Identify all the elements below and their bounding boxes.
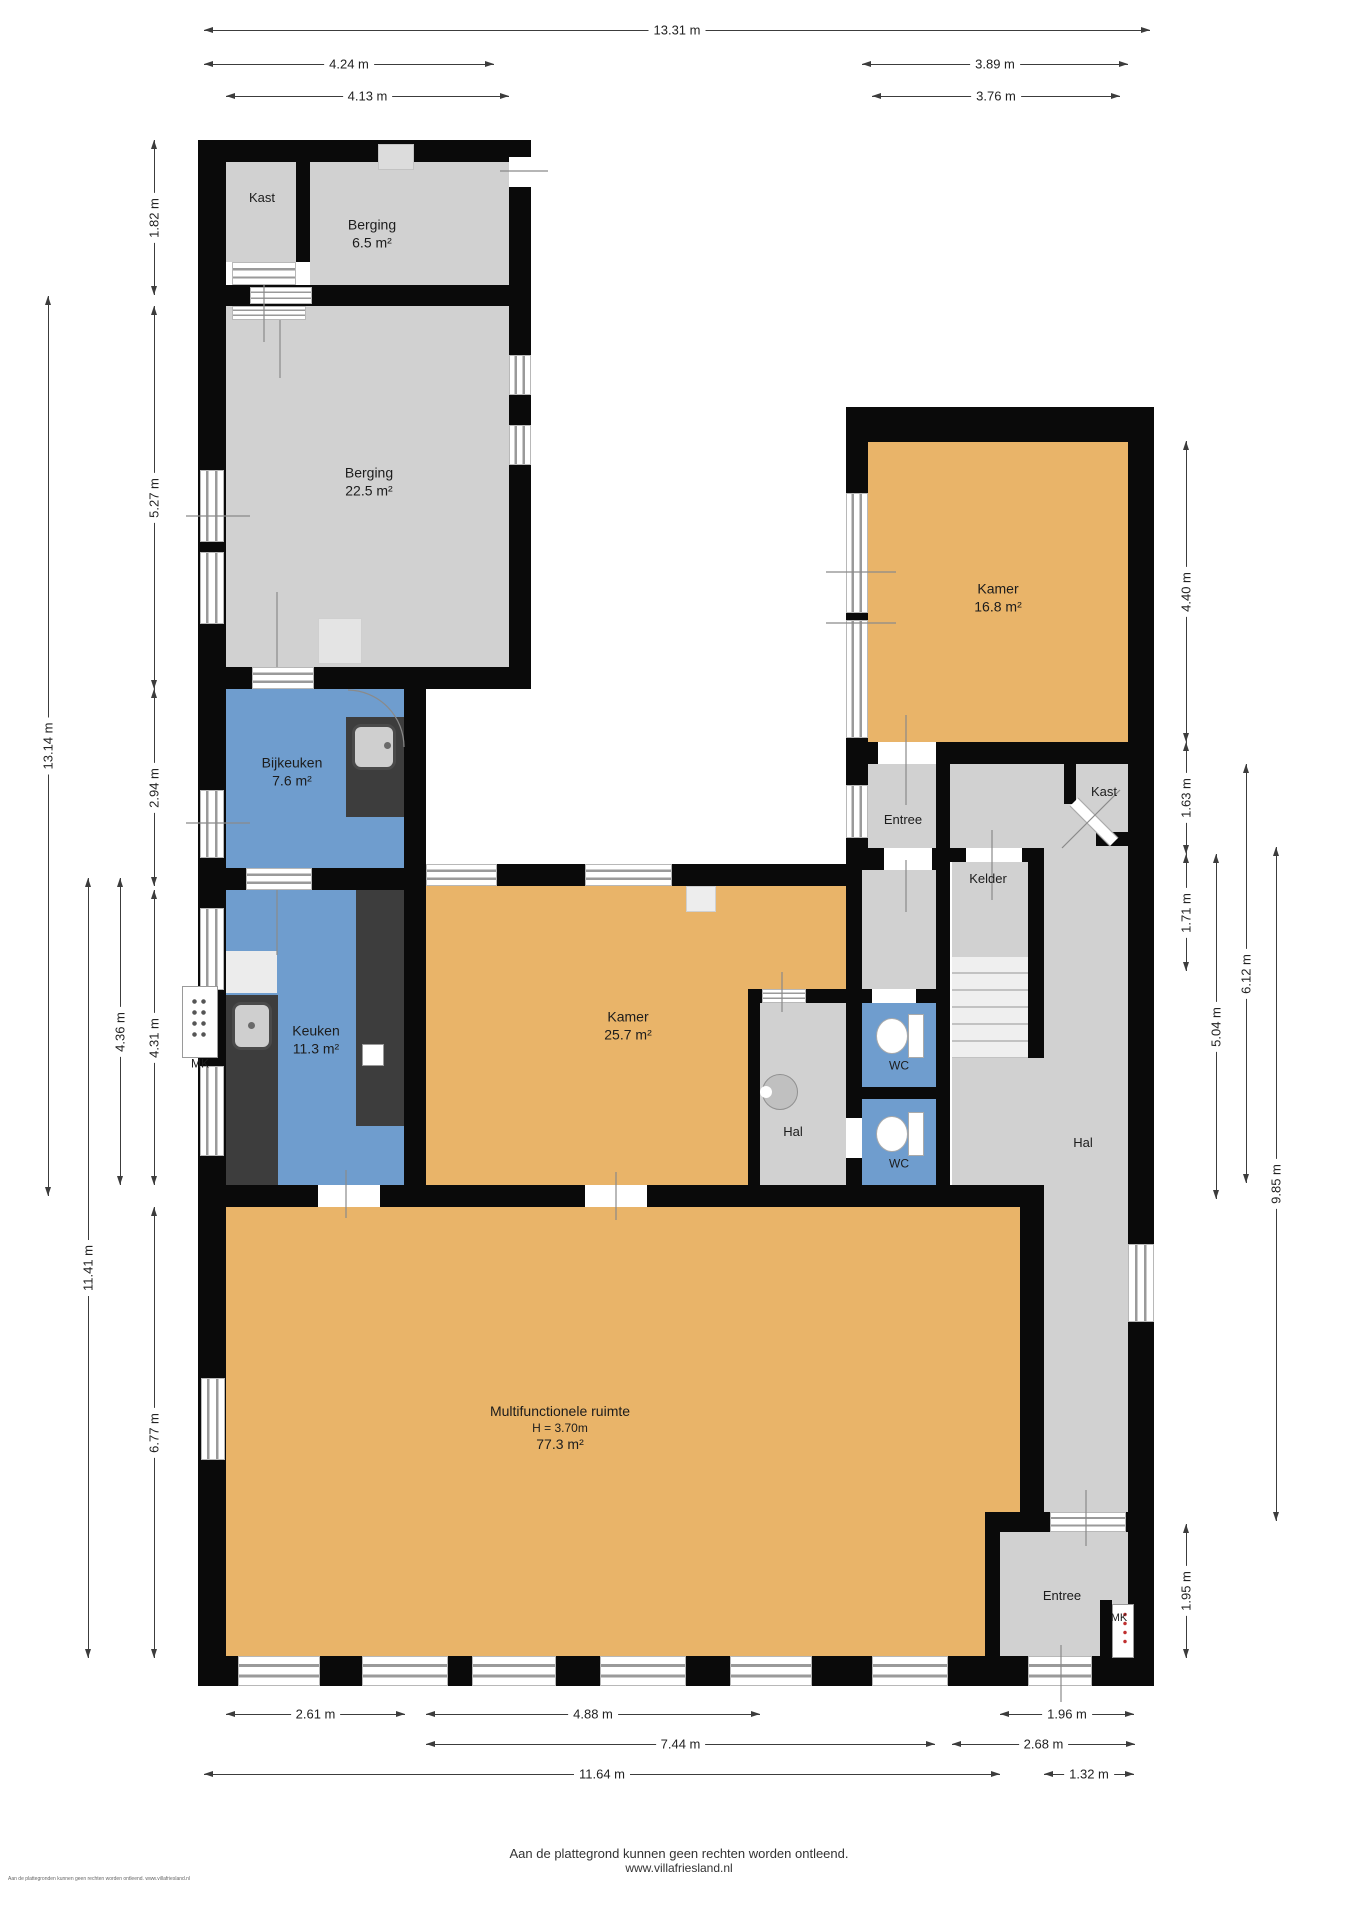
room-entree-rechts <box>868 764 936 848</box>
window-onder-1 <box>238 1656 320 1686</box>
room-label-mk-beneden: MK <box>1111 1612 1128 1626</box>
dimension-6.77-m: 6.77 m <box>150 1207 159 1658</box>
room-label-wc-onder: WC <box>889 1157 909 1172</box>
door-voordeur <box>1028 1656 1092 1686</box>
sill-kast-top <box>232 262 296 285</box>
wall-kast-rechts-zij <box>1064 764 1076 804</box>
dimension-4.36-m: 4.36 m <box>116 878 125 1185</box>
wc-boven-stortbak-icon <box>908 1014 924 1058</box>
wall-rechtsvleugel-rechts <box>1128 407 1154 1686</box>
stairs <box>952 957 1028 1058</box>
corner-note: Aan de plattegronden kunnen geen rechten… <box>8 1876 190 1882</box>
window-keuken-1 <box>200 908 224 990</box>
room-label-hal-rechts: Hal <box>1073 1135 1093 1151</box>
room-label-kast-top: Kast <box>249 190 275 206</box>
room-label-kamer-rechts: Kamer16.8 m² <box>974 581 1021 616</box>
wall-bijkeuken-keuken <box>198 868 426 890</box>
window-bijkeuken <box>200 790 224 858</box>
sill-berging-deur <box>232 306 306 320</box>
window-kamer-top-1 <box>426 864 497 886</box>
dimension-4.40-m: 4.40 m <box>1182 441 1191 742</box>
window-links-2 <box>200 552 224 624</box>
kamer-radiator <box>686 886 716 912</box>
dimension-2.94-m: 2.94 m <box>150 689 159 886</box>
dimension-11.64-m: 11.64 m <box>204 1770 1000 1779</box>
keuken-kookplaat-icon <box>362 1044 384 1066</box>
corridor-midden <box>862 870 936 989</box>
dimension-11.41-m: 11.41 m <box>84 878 93 1658</box>
window-keuken-2 <box>200 1066 224 1156</box>
wc-boven-pot-icon <box>876 1018 908 1054</box>
window-multifunctioneel-links <box>201 1378 225 1460</box>
dimension-4.88-m: 4.88 m <box>426 1710 760 1719</box>
wall-kamer-rechtszijde <box>748 989 760 1185</box>
wall-rechtsvleugel-top <box>846 407 1150 442</box>
wall-kast-top-rechts <box>296 162 310 262</box>
window-links-1 <box>200 470 224 542</box>
room-label-keuken: Keuken11.3 m² <box>292 1023 339 1058</box>
door-berging-klein-buiten <box>509 157 531 187</box>
dimension-7.44-m: 7.44 m <box>426 1740 935 1749</box>
wall-wc-split <box>862 1087 936 1099</box>
window-berging-split <box>250 287 312 304</box>
room-label-mk-links: MK <box>191 1057 209 1072</box>
room-label-berging-klein: Berging6.5 m² <box>348 217 396 252</box>
dimension-9.85-m: 9.85 m <box>1272 847 1281 1521</box>
room-label-bijkeuken: Bijkeuken7.6 m² <box>262 755 323 790</box>
floorplan: KastBerging6.5 m²Berging22.5 m²Bijkeuken… <box>0 0 1358 1920</box>
wall-berging-split <box>198 285 531 306</box>
door-kamer-multifunctioneel <box>585 1185 647 1207</box>
door-kamer-entree <box>878 742 936 764</box>
window-entree-rechts <box>846 785 868 838</box>
dimension-4.24-m: 4.24 m <box>204 60 494 69</box>
dimension-1.96-m: 1.96 m <box>1000 1710 1134 1719</box>
room-label-kast-rechts: Kast <box>1091 784 1117 800</box>
room-kast-top <box>226 162 296 262</box>
dimension-6.12-m: 6.12 m <box>1242 764 1251 1183</box>
dimension-1.32-m: 1.32 m <box>1044 1770 1134 1779</box>
door-kelder <box>966 848 1022 862</box>
wall-berging-bottom <box>198 667 531 689</box>
door-wc-boven <box>872 989 916 1003</box>
wall-hal-oranje <box>1020 1185 1044 1512</box>
room-berging-klein <box>310 162 509 285</box>
room-label-wc-boven: WC <box>889 1059 909 1074</box>
window-kamer-rechts-1 <box>846 493 868 613</box>
hal-onder-trap <box>952 1058 1128 1185</box>
bijkeuken-kraan-icon <box>384 742 391 749</box>
door-entree-corridor <box>884 848 932 870</box>
berging-apparaat <box>318 618 362 664</box>
wc-onder-pot-icon <box>876 1116 908 1152</box>
footer-website: www.villafriesland.nl <box>0 1861 1358 1875</box>
room-label-kamer-groot: Kamer25.7 m² <box>604 1009 651 1044</box>
dimension-2.68-m: 2.68 m <box>952 1740 1135 1749</box>
window-onder-3 <box>472 1656 556 1686</box>
dimension-4.13-m: 4.13 m <box>226 92 509 101</box>
sill-berging-onder <box>252 667 314 689</box>
dimension-3.89-m: 3.89 m <box>862 60 1128 69</box>
door-keuken-multifunctioneel <box>318 1185 380 1207</box>
window-onder-5 <box>730 1656 812 1686</box>
wall-top-leftblock <box>198 140 531 162</box>
dimension-2.61-m: 2.61 m <box>226 1710 405 1719</box>
dimension-1.71-m: 1.71 m <box>1182 854 1191 971</box>
window-hal-rechtsmuur <box>1128 1244 1154 1322</box>
window-onder-6 <box>872 1656 948 1686</box>
room-label-hal-midden: Hal <box>783 1124 803 1140</box>
window-onder-4 <box>600 1656 686 1686</box>
dimension-5.04-m: 5.04 m <box>1212 854 1221 1199</box>
wall-kast-rechts-onder <box>1096 832 1128 846</box>
window-halmidden <box>762 989 806 1003</box>
window-kamer-rechts-2 <box>846 620 868 738</box>
keuken-kraan-icon <box>248 1022 255 1029</box>
room-label-entree-rechts: Entree <box>884 812 922 828</box>
door-wc-onder <box>846 1118 862 1158</box>
wall-mk-beneden <box>1100 1600 1112 1656</box>
dimension-1.82-m: 1.82 m <box>150 140 159 295</box>
wall-leftblock-right <box>509 140 531 689</box>
keuken-kolom-donker <box>356 890 404 1126</box>
wall-kelder-rechts <box>1028 848 1044 1058</box>
dimension-13.14-m: 13.14 m <box>44 296 53 1196</box>
dimension-5.27-m: 5.27 m <box>150 306 159 689</box>
keuken-aanrecht-wit <box>226 951 277 993</box>
window-onder-2 <box>362 1656 448 1686</box>
berging-kast-object <box>378 144 414 170</box>
wc-onder-stortbak-icon <box>908 1112 924 1156</box>
room-label-berging-groot: Berging22.5 m² <box>345 465 393 500</box>
dimension-13.31-m: 13.31 m <box>204 26 1150 35</box>
wall-bijkeuken-right <box>404 689 426 890</box>
window-entree-beneden-top <box>1050 1512 1126 1532</box>
footer-disclaimer: Aan de plattegrond kunnen geen rechten w… <box>0 1846 1358 1861</box>
dimension-1.63-m: 1.63 m <box>1182 742 1191 854</box>
room-label-kelder: Kelder <box>969 871 1007 887</box>
room-kamer-groot-ext <box>426 886 846 989</box>
dimension-1.95-m: 1.95 m <box>1182 1524 1191 1658</box>
mk-links-meters-icon <box>190 996 208 1040</box>
sill-bijkeuken-keuken <box>246 868 312 890</box>
footer: Aan de plattegrond kunnen geen rechten w… <box>0 1846 1358 1875</box>
wall-corridor-links <box>846 870 862 1003</box>
wall-wc-rechts <box>936 764 950 1185</box>
window-kamer-top-2 <box>585 864 672 886</box>
room-label-multifunctionele-ruimte: Multifunctionele ruimteH = 3.70m77.3 m² <box>490 1403 630 1453</box>
hal-fontein-notch <box>760 1086 772 1098</box>
dimension-3.76-m: 3.76 m <box>872 92 1120 101</box>
window-berging-rechts-1 <box>509 355 531 395</box>
room-label-entree-beneden: Entree <box>1043 1588 1081 1604</box>
window-berging-rechts-2 <box>509 425 531 465</box>
dimension-4.31-m: 4.31 m <box>150 890 159 1185</box>
wall-keuken-kamer <box>404 890 426 1185</box>
